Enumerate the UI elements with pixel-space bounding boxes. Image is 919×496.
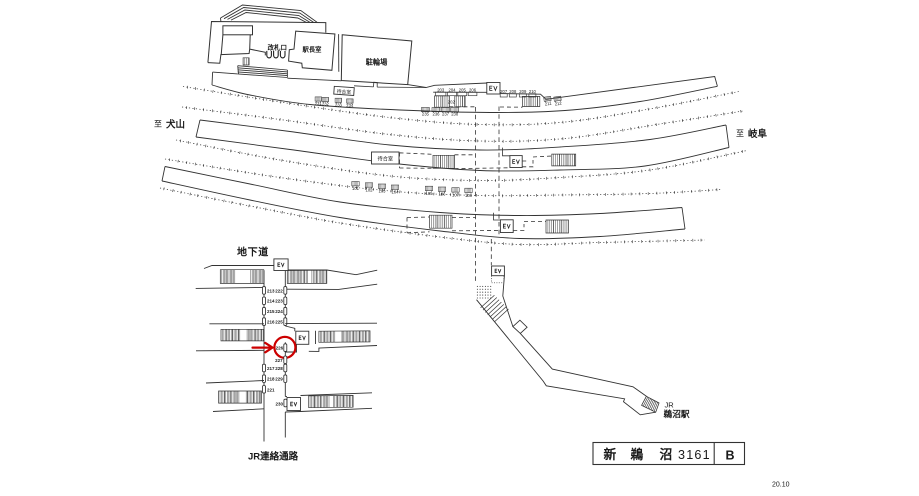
svg-text:地下道: 地下道 bbox=[237, 246, 269, 259]
svg-text:226: 226 bbox=[276, 346, 284, 351]
svg-text:230: 230 bbox=[275, 401, 283, 406]
svg-text:237: 237 bbox=[442, 112, 450, 117]
svg-text:沼: 沼 bbox=[660, 447, 673, 462]
svg-text:103: 103 bbox=[379, 189, 387, 194]
svg-text:204: 204 bbox=[449, 87, 457, 92]
svg-text:233: 233 bbox=[335, 103, 343, 108]
svg-text:223: 223 bbox=[275, 299, 283, 304]
svg-text:238: 238 bbox=[451, 112, 459, 117]
svg-text:202: 202 bbox=[448, 99, 456, 104]
svg-text:108: 108 bbox=[465, 193, 473, 198]
svg-text:改札口: 改札口 bbox=[267, 42, 287, 51]
svg-text:225: 225 bbox=[275, 320, 283, 325]
svg-text:232: 232 bbox=[322, 102, 330, 107]
svg-text:犬山: 犬山 bbox=[165, 119, 185, 131]
svg-text:駐輪場: 駐輪場 bbox=[366, 57, 388, 66]
svg-text:待合室: 待合室 bbox=[378, 154, 394, 162]
svg-text:106: 106 bbox=[439, 192, 447, 197]
svg-text:駅長室: 駅長室 bbox=[303, 45, 323, 54]
svg-text:209: 209 bbox=[519, 89, 527, 94]
svg-text:236: 236 bbox=[433, 112, 441, 117]
svg-text:101: 101 bbox=[352, 186, 360, 191]
svg-text:105: 105 bbox=[426, 191, 434, 196]
svg-text:JR: JR bbox=[665, 400, 675, 409]
svg-text:221: 221 bbox=[267, 388, 275, 393]
svg-text:212: 212 bbox=[554, 101, 562, 107]
svg-text:至: 至 bbox=[154, 120, 162, 129]
svg-text:214: 214 bbox=[267, 299, 275, 304]
svg-text:206: 206 bbox=[469, 87, 477, 92]
svg-text:222: 222 bbox=[275, 288, 283, 293]
svg-text:228: 228 bbox=[275, 366, 283, 371]
svg-text:B: B bbox=[726, 449, 735, 463]
svg-text:新: 新 bbox=[604, 447, 617, 462]
svg-text:215: 215 bbox=[267, 309, 275, 314]
svg-text:218: 218 bbox=[267, 377, 275, 382]
svg-text:217: 217 bbox=[267, 366, 275, 371]
svg-text:104: 104 bbox=[392, 190, 400, 195]
svg-text:3161: 3161 bbox=[678, 448, 711, 462]
svg-text:203: 203 bbox=[437, 87, 445, 92]
svg-text:鵜沼駅: 鵜沼駅 bbox=[663, 408, 690, 419]
svg-text:207: 207 bbox=[500, 89, 508, 94]
svg-text:107: 107 bbox=[452, 192, 460, 197]
svg-text:205: 205 bbox=[459, 87, 467, 92]
svg-text:JR連絡通路: JR連絡通路 bbox=[248, 451, 299, 463]
svg-text:210: 210 bbox=[529, 89, 537, 94]
svg-text:岐阜: 岐阜 bbox=[748, 128, 768, 140]
svg-text:208: 208 bbox=[509, 89, 517, 94]
svg-text:102: 102 bbox=[366, 188, 374, 193]
svg-text:235: 235 bbox=[422, 112, 430, 117]
svg-text:224: 224 bbox=[275, 309, 283, 314]
svg-text:鵜: 鵜 bbox=[630, 447, 644, 462]
svg-text:213: 213 bbox=[267, 288, 275, 293]
svg-text:234: 234 bbox=[346, 103, 354, 108]
svg-text:227: 227 bbox=[275, 358, 283, 363]
svg-text:20.10: 20.10 bbox=[772, 482, 790, 489]
svg-text:216: 216 bbox=[267, 320, 275, 325]
svg-text:至: 至 bbox=[736, 129, 744, 138]
svg-text:229: 229 bbox=[275, 377, 283, 382]
